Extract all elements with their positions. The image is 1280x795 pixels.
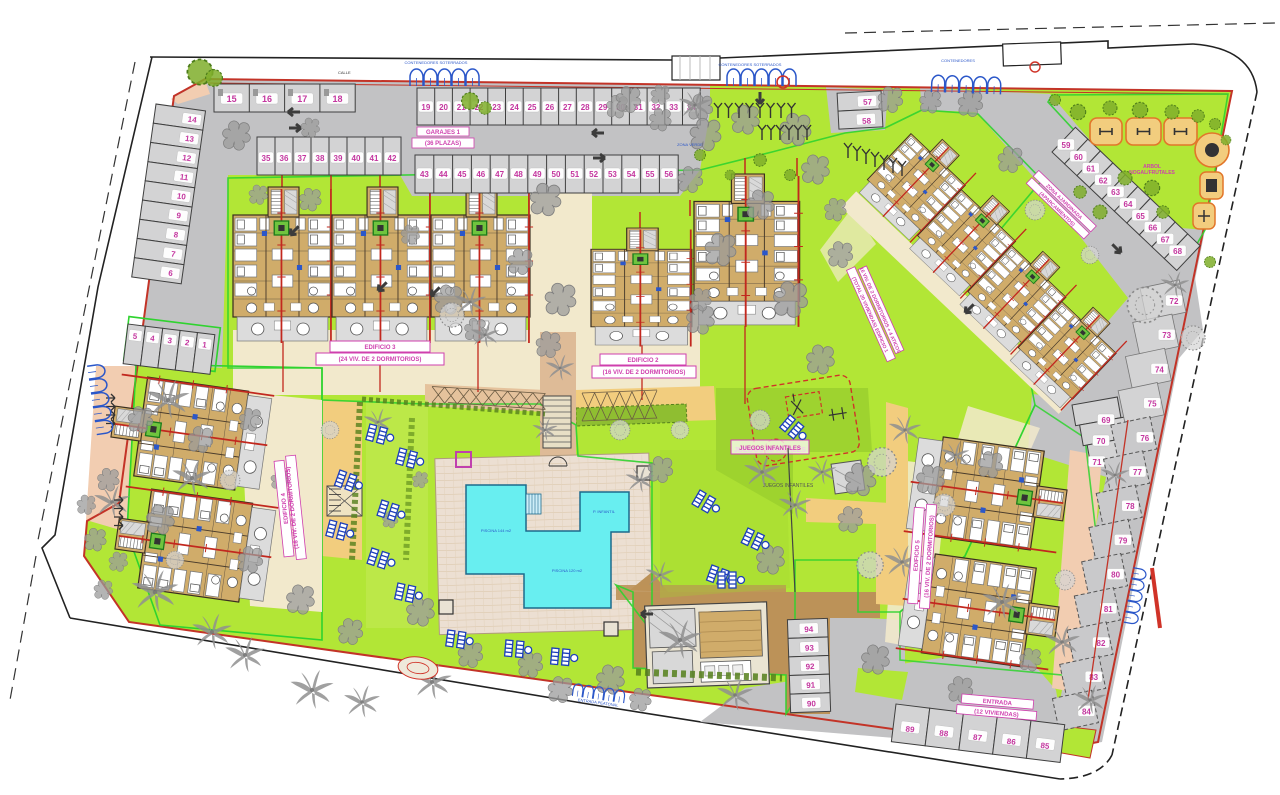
svg-text:41: 41 bbox=[370, 154, 379, 163]
svg-text:EDIFICIO 2: EDIFICIO 2 bbox=[627, 358, 659, 364]
svg-text:93: 93 bbox=[805, 643, 815, 652]
svg-text:49: 49 bbox=[533, 170, 542, 179]
svg-text:69: 69 bbox=[1102, 416, 1111, 425]
svg-text:68: 68 bbox=[1173, 247, 1182, 256]
svg-text:61: 61 bbox=[1086, 165, 1095, 174]
svg-text:EDIFICIO 3: EDIFICIO 3 bbox=[364, 345, 396, 351]
svg-text:18: 18 bbox=[333, 94, 343, 104]
svg-text:71: 71 bbox=[1093, 458, 1102, 467]
svg-text:42: 42 bbox=[388, 154, 397, 163]
svg-text:90: 90 bbox=[807, 699, 817, 708]
svg-text:79: 79 bbox=[1118, 536, 1127, 545]
svg-text:36: 36 bbox=[280, 154, 289, 163]
svg-text:73: 73 bbox=[1162, 331, 1171, 340]
svg-text:65: 65 bbox=[1136, 212, 1145, 221]
svg-text:26: 26 bbox=[545, 103, 554, 112]
svg-text:78: 78 bbox=[1126, 502, 1135, 511]
svg-text:85: 85 bbox=[1040, 741, 1050, 751]
svg-text:89: 89 bbox=[905, 724, 915, 734]
svg-text:57: 57 bbox=[863, 97, 873, 106]
svg-text:66: 66 bbox=[1148, 224, 1157, 233]
svg-text:CONTENEDORES SOTERRADOS: CONTENEDORES SOTERRADOS bbox=[719, 62, 782, 67]
svg-text:CALLE: CALLE bbox=[338, 70, 351, 75]
svg-text:48: 48 bbox=[514, 170, 523, 179]
svg-text:64: 64 bbox=[1124, 200, 1133, 209]
svg-text:45: 45 bbox=[458, 170, 467, 179]
svg-text:86: 86 bbox=[1006, 737, 1016, 747]
svg-text:PISCINA 144 m2: PISCINA 144 m2 bbox=[481, 528, 512, 533]
svg-text:94: 94 bbox=[804, 625, 814, 634]
svg-text:56: 56 bbox=[664, 170, 673, 179]
svg-text:77: 77 bbox=[1133, 468, 1142, 477]
svg-text:20: 20 bbox=[439, 103, 448, 112]
svg-text:(16 VIV. DE 2 DORMITORIOS): (16 VIV. DE 2 DORMITORIOS) bbox=[603, 370, 686, 376]
svg-text:GARAJES 1: GARAJES 1 bbox=[426, 130, 461, 136]
svg-text:28: 28 bbox=[581, 103, 590, 112]
svg-text:10: 10 bbox=[176, 191, 187, 201]
svg-text:55: 55 bbox=[646, 170, 655, 179]
svg-text:35: 35 bbox=[262, 154, 271, 163]
svg-text:47: 47 bbox=[495, 170, 504, 179]
svg-text:25: 25 bbox=[528, 103, 537, 112]
svg-text:23: 23 bbox=[492, 103, 501, 112]
svg-text:27: 27 bbox=[563, 103, 572, 112]
svg-text:NOGAL/FRUTALES: NOGAL/FRUTALES bbox=[1129, 170, 1175, 176]
svg-text:91: 91 bbox=[806, 681, 816, 690]
svg-text:50: 50 bbox=[552, 170, 561, 179]
svg-text:39: 39 bbox=[334, 154, 343, 163]
svg-text:37: 37 bbox=[298, 154, 307, 163]
svg-text:88: 88 bbox=[939, 729, 949, 739]
svg-text:15: 15 bbox=[227, 94, 237, 104]
svg-text:81: 81 bbox=[1104, 605, 1113, 614]
svg-text:74: 74 bbox=[1155, 365, 1164, 374]
svg-text:75: 75 bbox=[1148, 400, 1157, 409]
svg-text:(24 VIV. DE 2 DORMITORIOS): (24 VIV. DE 2 DORMITORIOS) bbox=[339, 357, 422, 363]
svg-text:ZONA VERDE: ZONA VERDE bbox=[677, 142, 703, 147]
svg-text:46: 46 bbox=[476, 170, 485, 179]
svg-text:CONTENEDORES: CONTENEDORES bbox=[941, 58, 975, 63]
svg-text:16: 16 bbox=[262, 94, 272, 104]
svg-text:33: 33 bbox=[669, 103, 678, 112]
svg-text:52: 52 bbox=[589, 170, 598, 179]
svg-text:14: 14 bbox=[187, 115, 198, 125]
svg-text:38: 38 bbox=[316, 154, 325, 163]
svg-text:59: 59 bbox=[1062, 141, 1071, 150]
svg-text:12: 12 bbox=[182, 153, 193, 163]
svg-text:67: 67 bbox=[1161, 235, 1170, 244]
svg-text:(36 PLAZAS): (36 PLAZAS) bbox=[425, 141, 461, 147]
svg-text:80: 80 bbox=[1111, 571, 1120, 580]
svg-text:84: 84 bbox=[1082, 707, 1091, 716]
svg-text:76: 76 bbox=[1140, 434, 1149, 443]
svg-text:82: 82 bbox=[1097, 639, 1106, 648]
svg-text:24: 24 bbox=[510, 103, 519, 112]
svg-text:62: 62 bbox=[1099, 176, 1108, 185]
svg-text:72: 72 bbox=[1170, 297, 1179, 306]
svg-text:51: 51 bbox=[570, 170, 579, 179]
svg-text:17: 17 bbox=[297, 94, 307, 104]
svg-text:87: 87 bbox=[973, 733, 983, 743]
svg-text:CONTENEDORES SOTERRADOS: CONTENEDORES SOTERRADOS bbox=[405, 60, 468, 65]
svg-text:70: 70 bbox=[1097, 437, 1106, 446]
svg-text:44: 44 bbox=[439, 170, 448, 179]
svg-text:43: 43 bbox=[420, 170, 429, 179]
svg-text:92: 92 bbox=[805, 662, 815, 671]
svg-text:54: 54 bbox=[627, 170, 636, 179]
svg-text:13: 13 bbox=[184, 134, 195, 144]
svg-text:63: 63 bbox=[1111, 188, 1120, 197]
svg-text:P. INFANTIL: P. INFANTIL bbox=[593, 509, 616, 514]
svg-text:JUEGOS INFANTILES: JUEGOS INFANTILES bbox=[739, 446, 801, 452]
svg-text:53: 53 bbox=[608, 170, 617, 179]
svg-text:JUEGOS INFANTILES: JUEGOS INFANTILES bbox=[763, 483, 814, 489]
svg-text:40: 40 bbox=[352, 154, 361, 163]
svg-text:19: 19 bbox=[421, 103, 430, 112]
svg-text:60: 60 bbox=[1074, 153, 1083, 162]
svg-text:PISCINA 120 m2: PISCINA 120 m2 bbox=[552, 568, 583, 573]
svg-text:58: 58 bbox=[862, 116, 872, 125]
